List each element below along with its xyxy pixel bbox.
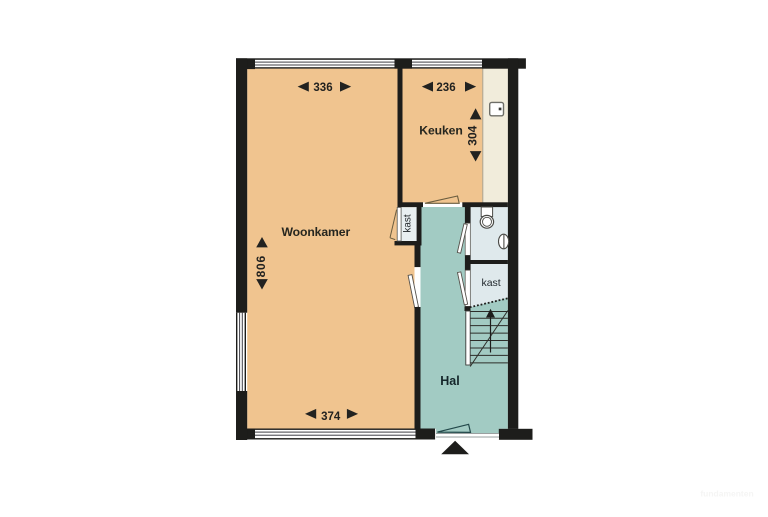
svg-text:336: 336	[313, 82, 332, 94]
svg-text:kast: kast	[402, 214, 413, 233]
svg-text:kast: kast	[481, 277, 500, 289]
svg-text:fundamenten: fundamenten	[700, 489, 753, 499]
svg-text:Woonkamer: Woonkamer	[281, 225, 350, 239]
svg-text:Hal: Hal	[440, 374, 459, 388]
svg-text:806: 806	[254, 255, 268, 277]
svg-text:236: 236	[436, 82, 455, 94]
svg-text:Keuken: Keuken	[419, 123, 462, 137]
svg-text:374: 374	[321, 411, 341, 423]
svg-text:304: 304	[465, 125, 479, 145]
